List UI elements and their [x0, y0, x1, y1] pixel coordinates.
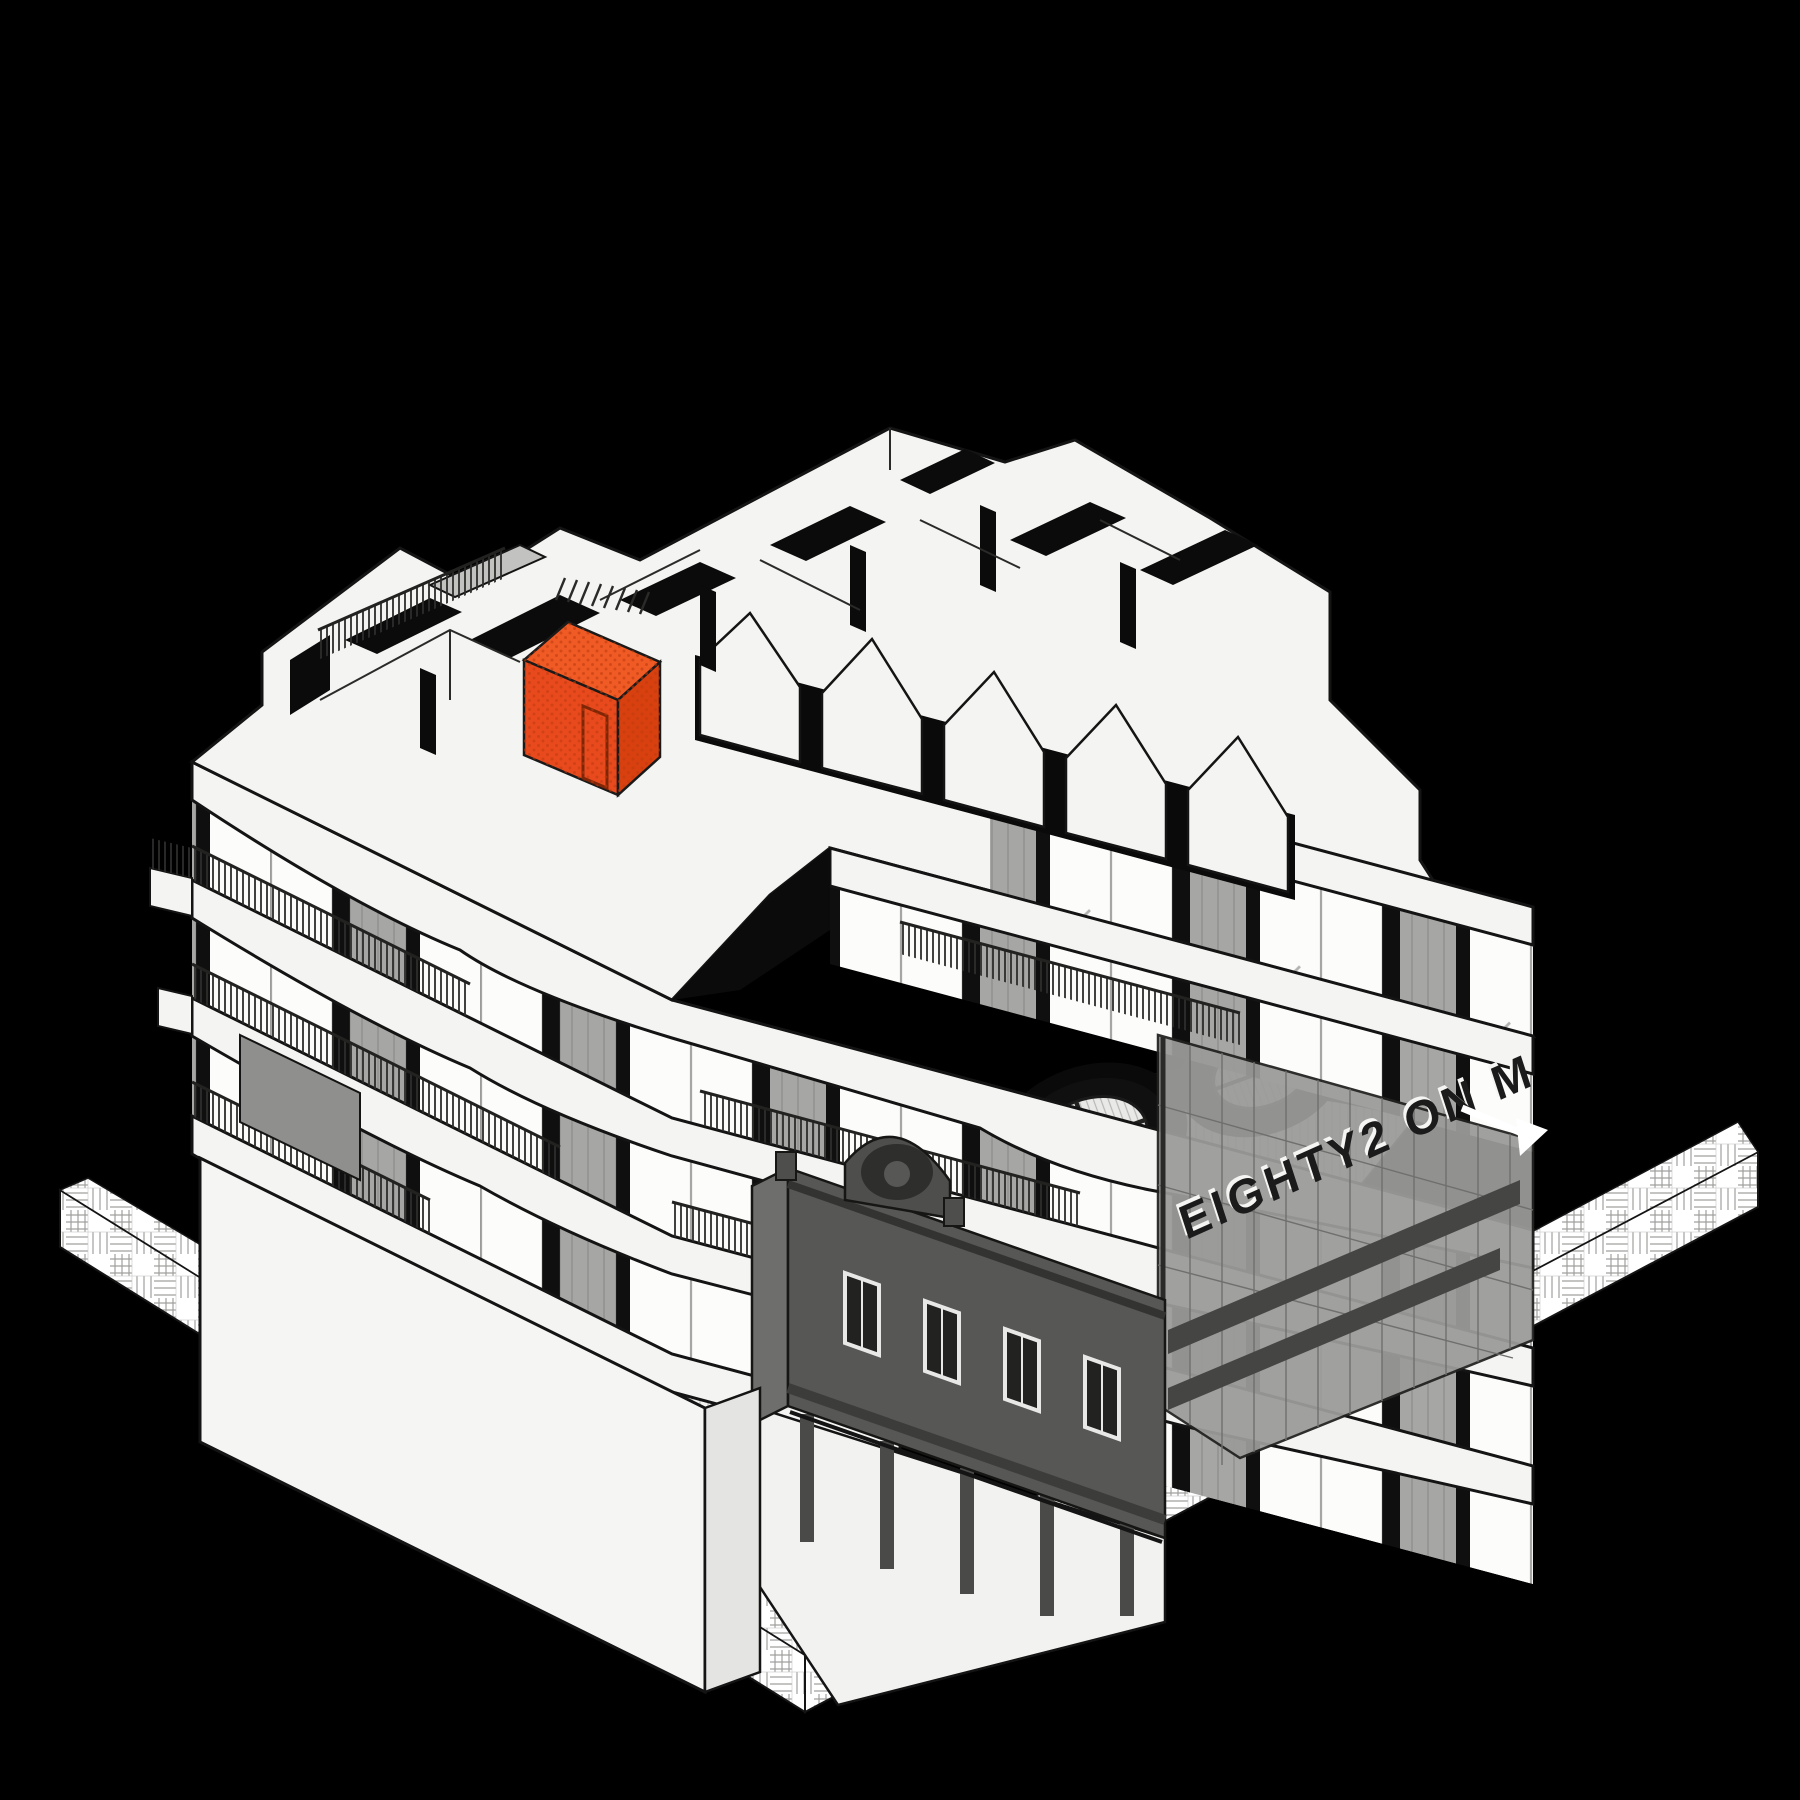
heritage-side-face: [752, 1168, 788, 1424]
axonometric-scene: EIGHTY2 ON M EIGHTY2 ON M: [0, 0, 1800, 1800]
podium-wall-return: [705, 1388, 760, 1692]
